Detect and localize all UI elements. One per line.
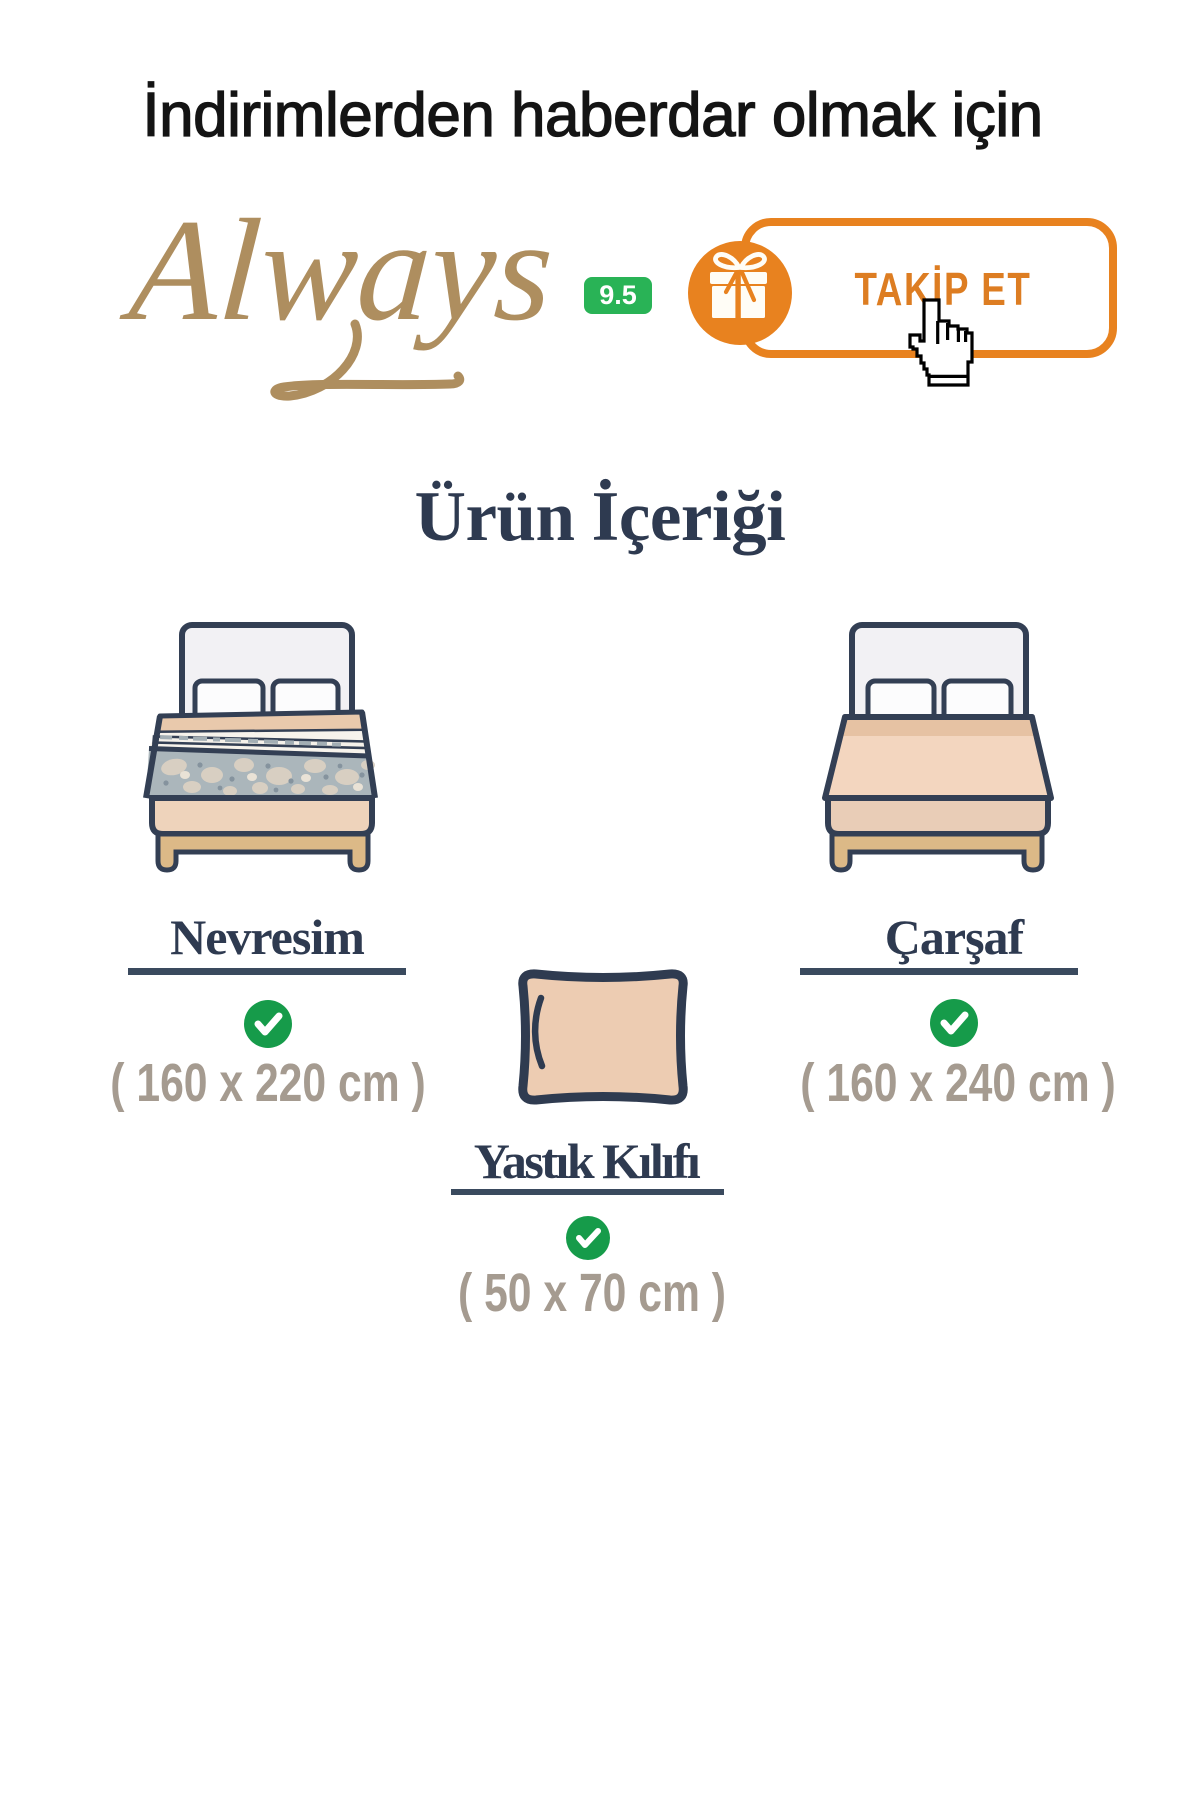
svg-text:Always: Always [117, 196, 558, 351]
